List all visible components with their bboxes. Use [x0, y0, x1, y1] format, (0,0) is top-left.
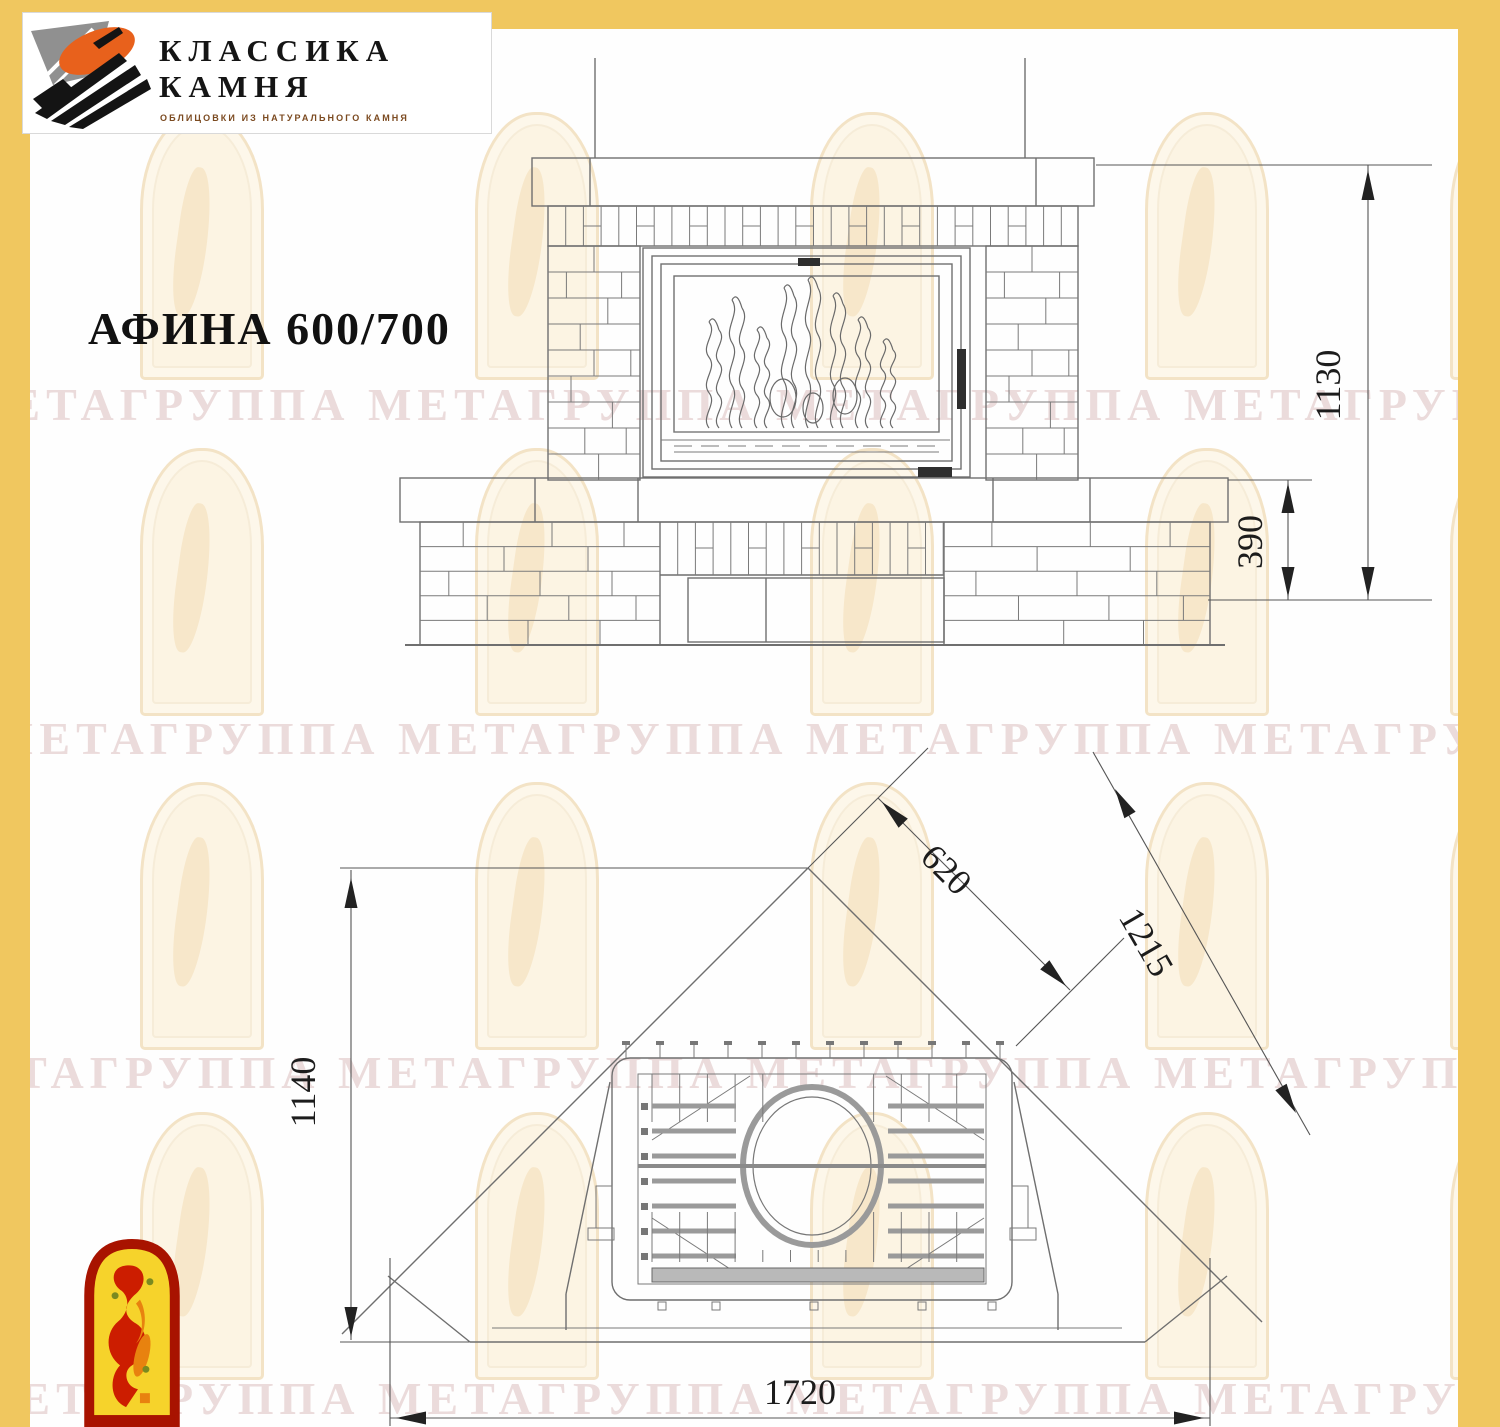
dim-diagonal-label: 1215: [1111, 901, 1182, 983]
front-elevation: 1130 390: [400, 58, 1432, 645]
base-masonry: [420, 522, 1210, 645]
brand-name-line1: КЛАССИКА: [159, 35, 395, 66]
frame-right: [1458, 0, 1500, 1427]
dim-overall-width-label: 1720: [764, 1372, 836, 1412]
insert-front-rail: [652, 1268, 984, 1282]
dim-depth-label: 1140: [283, 1057, 323, 1128]
flames-artwork: [706, 277, 895, 428]
brand-logo: КЛАССИКА КАМНЯ ОБЛИЦОВКИ ИЗ НАТУРАЛЬНОГО…: [22, 12, 492, 134]
model-title: АФИНА 600/700: [88, 302, 451, 355]
technical-drawing: 1130 390: [0, 0, 1500, 1427]
hearth-shelf: [400, 478, 1228, 522]
fireplace-spec-sheet: МЕТАГРУППА МЕТАГРУППА МЕТАГРУППА МЕТАГРУ…: [0, 0, 1500, 1427]
brand-logo-graphic: [23, 13, 155, 131]
wood-niche: [688, 578, 944, 642]
brand-plate: [918, 467, 952, 477]
door-latch: [798, 258, 820, 266]
firebox-door: [643, 248, 970, 477]
group-badge-graphic: [84, 1238, 180, 1427]
firebox-insert-plan: [588, 1041, 1036, 1310]
frame-left: [0, 0, 30, 1427]
wall-left: [342, 868, 808, 1334]
wall-right: [808, 868, 1262, 1322]
brand-name-line2: КАМНЯ: [159, 71, 315, 102]
brand-tagline: ОБЛИЦОВКИ ИЗ НАТУРАЛЬНОГО КАМНЯ: [160, 113, 409, 123]
dim-inner-width-label: 620: [913, 836, 979, 902]
dim-base-height-label: 390: [1230, 515, 1270, 569]
dim-line-inner-width: [878, 798, 1070, 990]
dim-total-height-label: 1130: [1308, 350, 1348, 421]
group-badge: [84, 1238, 180, 1427]
mantel-shelf: [532, 158, 1094, 206]
plan-view: 1140 620 1215 1720: [283, 748, 1310, 1426]
door-handle: [957, 349, 966, 409]
